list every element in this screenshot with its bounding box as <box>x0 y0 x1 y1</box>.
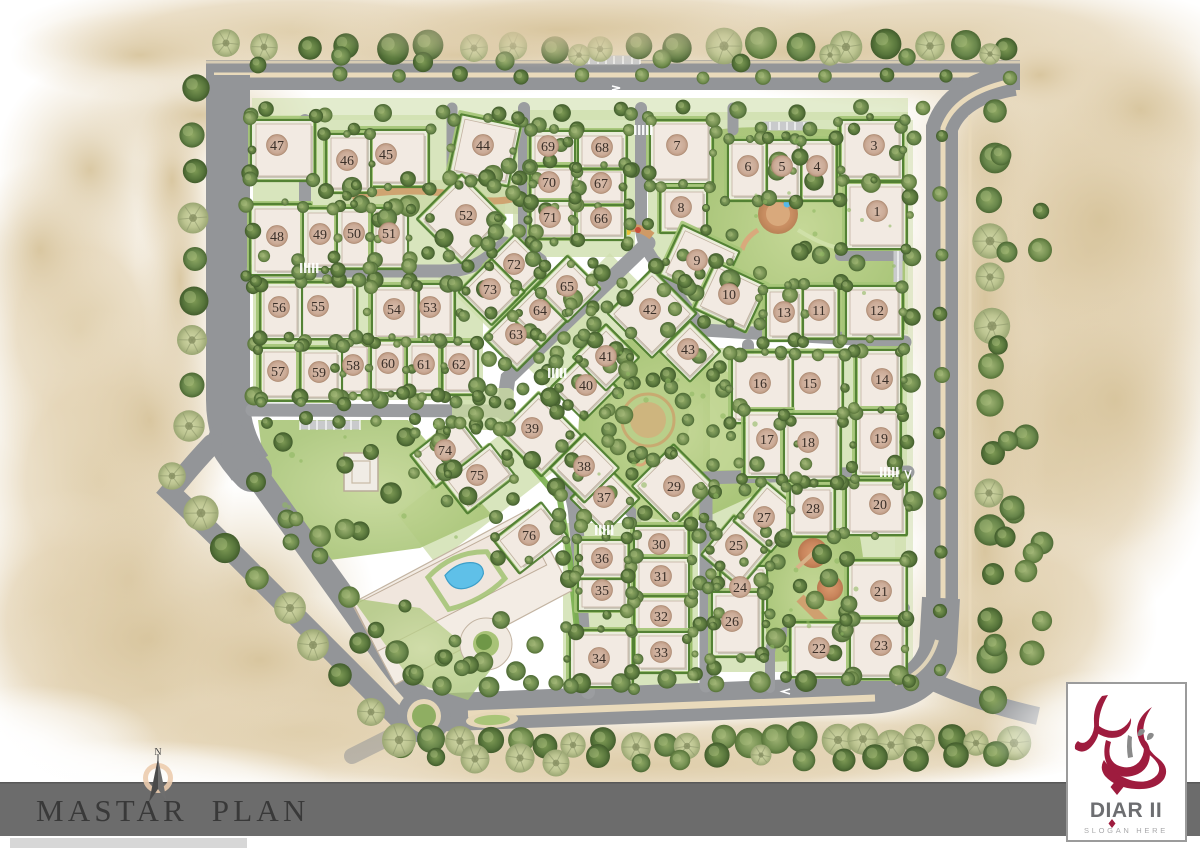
svg-text:66: 66 <box>594 212 608 227</box>
svg-text:13: 13 <box>777 306 791 321</box>
svg-text:25: 25 <box>729 539 743 554</box>
svg-text:11: 11 <box>812 304 825 319</box>
svg-text:24: 24 <box>733 581 747 596</box>
svg-text:73: 73 <box>483 283 497 298</box>
svg-text:75: 75 <box>470 469 484 484</box>
svg-text:18: 18 <box>801 436 815 451</box>
svg-text:70: 70 <box>542 176 556 191</box>
svg-text:10: 10 <box>722 288 736 303</box>
svg-text:16: 16 <box>753 377 767 392</box>
svg-text:27: 27 <box>757 511 771 526</box>
svg-text:49: 49 <box>313 228 327 243</box>
svg-text:48: 48 <box>270 230 284 245</box>
svg-text:31: 31 <box>654 570 668 585</box>
svg-text:19: 19 <box>874 432 888 447</box>
svg-text:63: 63 <box>509 328 523 343</box>
svg-text:57: 57 <box>271 365 285 380</box>
svg-text:7: 7 <box>674 139 681 154</box>
svg-text:69: 69 <box>541 140 555 155</box>
svg-text:44: 44 <box>476 139 490 154</box>
svg-text:54: 54 <box>387 303 401 318</box>
svg-text:46: 46 <box>340 154 354 169</box>
svg-text:MASTAR PLAN: MASTAR PLAN <box>36 793 310 828</box>
svg-text:65: 65 <box>560 280 574 295</box>
svg-text:20: 20 <box>873 498 887 513</box>
svg-text:62: 62 <box>452 358 466 373</box>
svg-text:58: 58 <box>346 359 360 374</box>
svg-text:42: 42 <box>643 303 657 318</box>
svg-text:43: 43 <box>681 343 695 358</box>
svg-text:68: 68 <box>595 141 609 156</box>
svg-text:N: N <box>154 747 161 758</box>
svg-text:17: 17 <box>760 433 774 448</box>
svg-text:26: 26 <box>725 615 739 630</box>
svg-text:67: 67 <box>594 177 608 192</box>
svg-text:72: 72 <box>507 258 521 273</box>
svg-text:3: 3 <box>871 139 878 154</box>
svg-text:12: 12 <box>870 304 884 319</box>
svg-text:64: 64 <box>533 304 547 319</box>
svg-text:9: 9 <box>694 254 701 269</box>
svg-text:14: 14 <box>875 373 889 388</box>
svg-text:50: 50 <box>347 227 361 242</box>
svg-text:33: 33 <box>654 646 668 661</box>
svg-text:74: 74 <box>438 444 452 459</box>
svg-text:28: 28 <box>806 502 820 517</box>
svg-text:30: 30 <box>652 538 666 553</box>
svg-text:59: 59 <box>312 366 326 381</box>
svg-text:DIAR II: DIAR II <box>1090 799 1162 822</box>
svg-text:41: 41 <box>599 350 613 365</box>
svg-text:47: 47 <box>270 139 284 154</box>
svg-text:8: 8 <box>678 201 685 216</box>
svg-text:55: 55 <box>311 300 325 315</box>
svg-text:76: 76 <box>522 529 536 544</box>
svg-text:61: 61 <box>417 358 431 373</box>
svg-text:60: 60 <box>381 357 395 372</box>
svg-text:53: 53 <box>423 301 437 316</box>
svg-text:1: 1 <box>874 205 881 220</box>
svg-text:40: 40 <box>579 379 593 394</box>
svg-text:36: 36 <box>595 552 609 567</box>
svg-text:39: 39 <box>525 422 539 437</box>
svg-text:32: 32 <box>654 610 668 625</box>
svg-text:5: 5 <box>779 160 786 175</box>
svg-text:35: 35 <box>595 584 609 599</box>
svg-text:SLOGAN HERE: SLOGAN HERE <box>1084 826 1168 835</box>
svg-text:37: 37 <box>597 491 611 506</box>
svg-text:21: 21 <box>874 585 888 600</box>
svg-text:6: 6 <box>745 160 752 175</box>
svg-text:15: 15 <box>803 377 817 392</box>
svg-text:52: 52 <box>459 209 473 224</box>
svg-text:4: 4 <box>814 160 821 175</box>
svg-text:71: 71 <box>543 211 557 226</box>
svg-text:22: 22 <box>812 642 826 657</box>
svg-text:34: 34 <box>592 652 606 667</box>
svg-text:23: 23 <box>874 639 888 654</box>
svg-text:29: 29 <box>667 480 681 495</box>
svg-text:38: 38 <box>577 460 591 475</box>
svg-text:45: 45 <box>379 148 393 163</box>
svg-text:56: 56 <box>272 301 286 316</box>
svg-text:51: 51 <box>382 227 396 242</box>
